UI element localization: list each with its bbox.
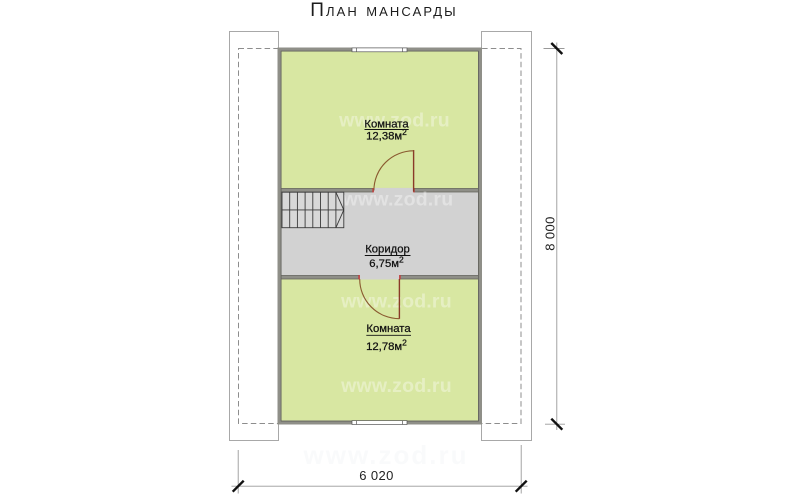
svg-text:www.zod.ru: www.zod.ru [340,375,452,397]
svg-text:www.zod.ru: www.zod.ru [342,189,454,211]
svg-text:www.zod.ru: www.zod.ru [340,291,452,313]
svg-text:План мансарды: План мансарды [310,0,458,21]
svg-text:6 020: 6 020 [359,468,394,483]
svg-text:www.zod.ru: www.zod.ru [303,440,469,470]
svg-text:8 000: 8 000 [543,216,558,251]
svg-text:Комната: Комната [366,323,411,335]
